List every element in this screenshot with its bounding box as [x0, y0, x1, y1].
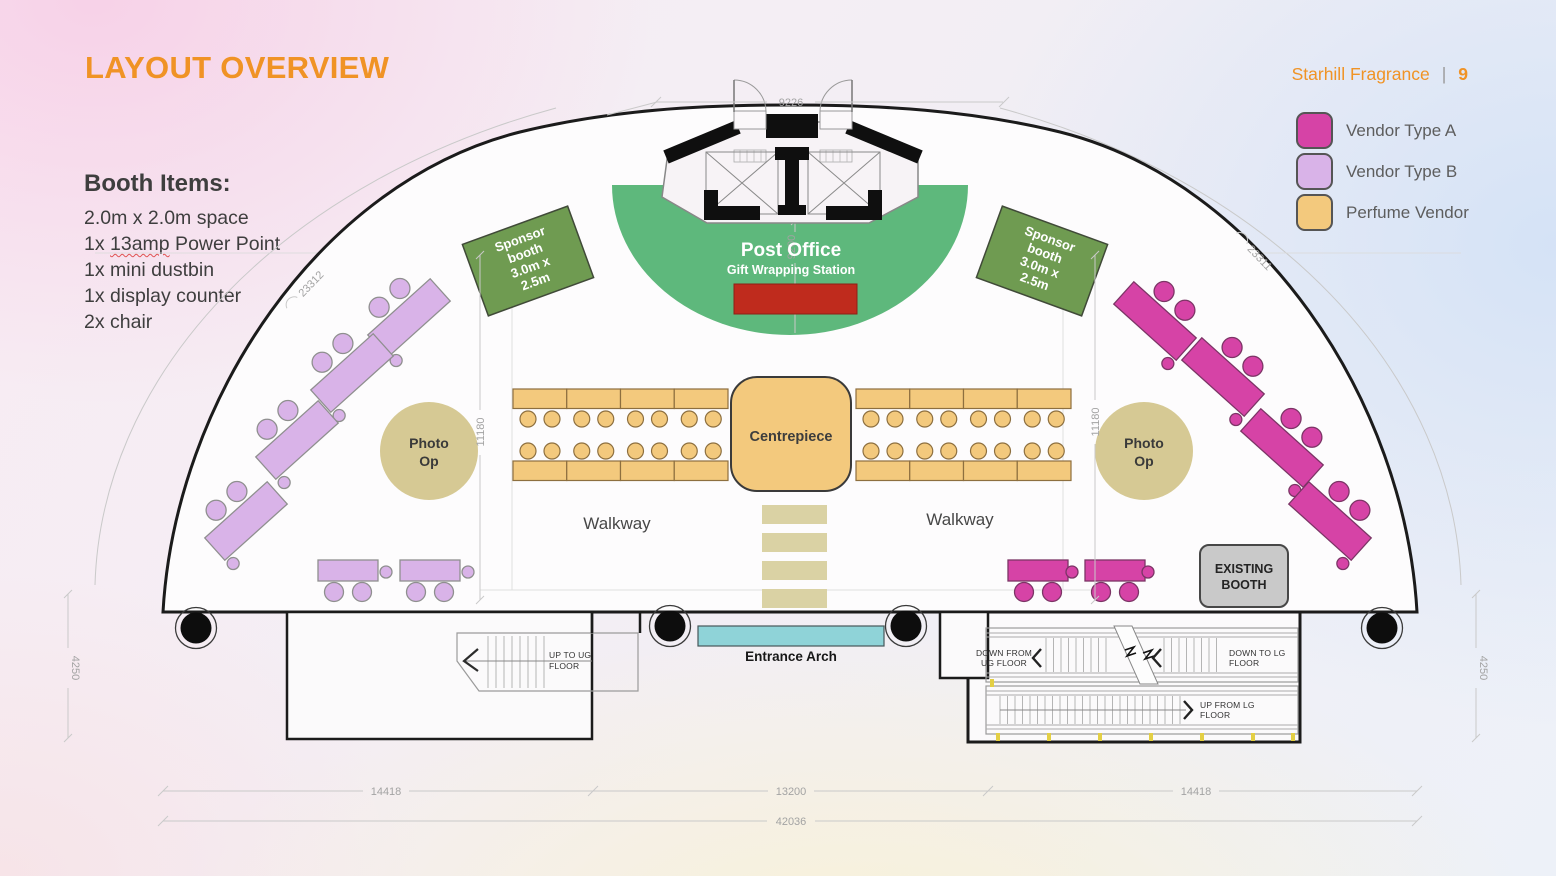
centrepiece-label: Centrepiece: [749, 429, 832, 445]
chair-icon: [574, 411, 590, 427]
dim-side-right: 4250: [1477, 656, 1489, 680]
chair-icon: [917, 443, 933, 459]
floor-plan: 9200 Post Office Gift Wrapping Station: [0, 0, 1556, 876]
chair-icon: [520, 411, 536, 427]
chair-icon: [705, 411, 721, 427]
dim-bottom-center: 13200: [776, 786, 807, 798]
marker-tick: [990, 679, 994, 687]
dim-inner-left: 11180: [475, 418, 487, 447]
chair-icon: [652, 411, 668, 427]
perfume-table: [910, 461, 964, 481]
door-icon: [734, 111, 766, 129]
perfume-table: [674, 389, 728, 409]
chair-icon: [887, 443, 903, 459]
perfume-table: [964, 461, 1018, 481]
marker-tick: [1200, 733, 1204, 741]
perfume-table: [567, 461, 621, 481]
perfume-table: [513, 389, 567, 409]
chair-icon: [598, 411, 614, 427]
marker-tick: [1251, 733, 1255, 741]
chair-icon: [1048, 411, 1064, 427]
dim-side-left: 4250: [69, 656, 81, 680]
existing-booth: [1200, 545, 1288, 607]
photo-op-right: [1095, 402, 1193, 500]
escalator-label: FLOOR: [1229, 658, 1259, 668]
column-icon: [181, 613, 212, 644]
chair-icon: [971, 411, 987, 427]
entrance-arch: [698, 626, 884, 646]
chair-icon: [598, 443, 614, 459]
escalator-label: DOWN TO LG: [1229, 648, 1285, 658]
chair-icon: [1024, 411, 1040, 427]
chair-icon: [941, 411, 957, 427]
chair-icon: [941, 443, 957, 459]
center-column: [778, 205, 806, 215]
chair-icon: [628, 443, 644, 459]
existing-booth-label: BOOTH: [1221, 578, 1266, 592]
column-icon: [655, 611, 686, 642]
chair-icon: [574, 443, 590, 459]
marker-tick: [1149, 733, 1153, 741]
perfume-table: [910, 389, 964, 409]
chair-icon: [863, 411, 879, 427]
stairs-label: FLOOR: [549, 661, 579, 671]
perfume-table: [964, 389, 1018, 409]
perfume-table: [674, 461, 728, 481]
post-office-label: Post Office: [741, 240, 841, 261]
dim-bottom-right: 14418: [1181, 786, 1212, 798]
wall-bracket: [826, 206, 882, 220]
photo-op-left: [380, 402, 478, 500]
existing-booth-label: EXISTING: [1215, 562, 1273, 576]
perfume-table: [621, 461, 675, 481]
column-icon: [891, 611, 922, 642]
escalator-landing: [940, 612, 988, 678]
chair-icon: [681, 443, 697, 459]
perfume-table: [567, 389, 621, 409]
chair-icon: [544, 443, 560, 459]
center-column: [785, 160, 799, 207]
column-icon: [1367, 613, 1398, 644]
photo-op-label: Photo: [1124, 435, 1164, 451]
photo-op-label: Op: [419, 453, 438, 469]
escalator-label: UP FROM LG: [1200, 700, 1255, 710]
chair-icon: [520, 443, 536, 459]
perfume-table: [856, 461, 910, 481]
wall-bracket: [704, 206, 760, 220]
chair-icon: [917, 411, 933, 427]
photo-op-label: Photo: [409, 435, 449, 451]
wall: [766, 114, 818, 138]
chair-icon: [863, 443, 879, 459]
gift-wrapping-label: Gift Wrapping Station: [727, 263, 855, 277]
chair-icon: [1024, 443, 1040, 459]
wall-bracket: [868, 190, 882, 206]
door-icon: [820, 111, 852, 129]
perfume-table: [856, 389, 910, 409]
chair-icon: [971, 443, 987, 459]
marker-tick: [996, 733, 1000, 741]
entrance-arch-label: Entrance Arch: [745, 649, 837, 664]
marker-tick: [1098, 733, 1102, 741]
chair-icon: [1048, 443, 1064, 459]
escalator-label: DOWN FROM: [976, 648, 1032, 658]
chair-icon: [887, 411, 903, 427]
chair-icon: [544, 411, 560, 427]
chair-icon: [995, 443, 1011, 459]
center-column: [775, 147, 809, 160]
chair-icon: [628, 411, 644, 427]
dim-bottom-total: 42036: [776, 816, 807, 828]
escalator-label: FLOOR: [1200, 710, 1230, 720]
perfume-table: [621, 389, 675, 409]
dim-top-width: 9226: [779, 97, 803, 109]
dim-inner-right: 11180: [1090, 408, 1102, 437]
stairs-label: UP TO UG: [549, 650, 591, 660]
walkway-label-left: Walkway: [583, 514, 651, 533]
photo-op-label: Op: [1134, 453, 1153, 469]
left-extension: [287, 612, 592, 739]
dim-bottom-left: 14418: [371, 786, 402, 798]
stair-opening: [592, 612, 640, 633]
perfume-table: [1017, 389, 1071, 409]
perfume-table: [513, 461, 567, 481]
chair-icon: [681, 411, 697, 427]
marker-tick: [1047, 733, 1051, 741]
perfume-table: [1017, 461, 1071, 481]
chair-icon: [652, 443, 668, 459]
wall-bracket: [704, 190, 718, 206]
marker-tick: [1291, 733, 1295, 741]
chair-icon: [705, 443, 721, 459]
chair-icon: [995, 411, 1011, 427]
walkway-label-right: Walkway: [926, 510, 994, 529]
escalator-label: UG FLOOR: [981, 658, 1027, 668]
gift-wrap-counter: [734, 284, 857, 314]
